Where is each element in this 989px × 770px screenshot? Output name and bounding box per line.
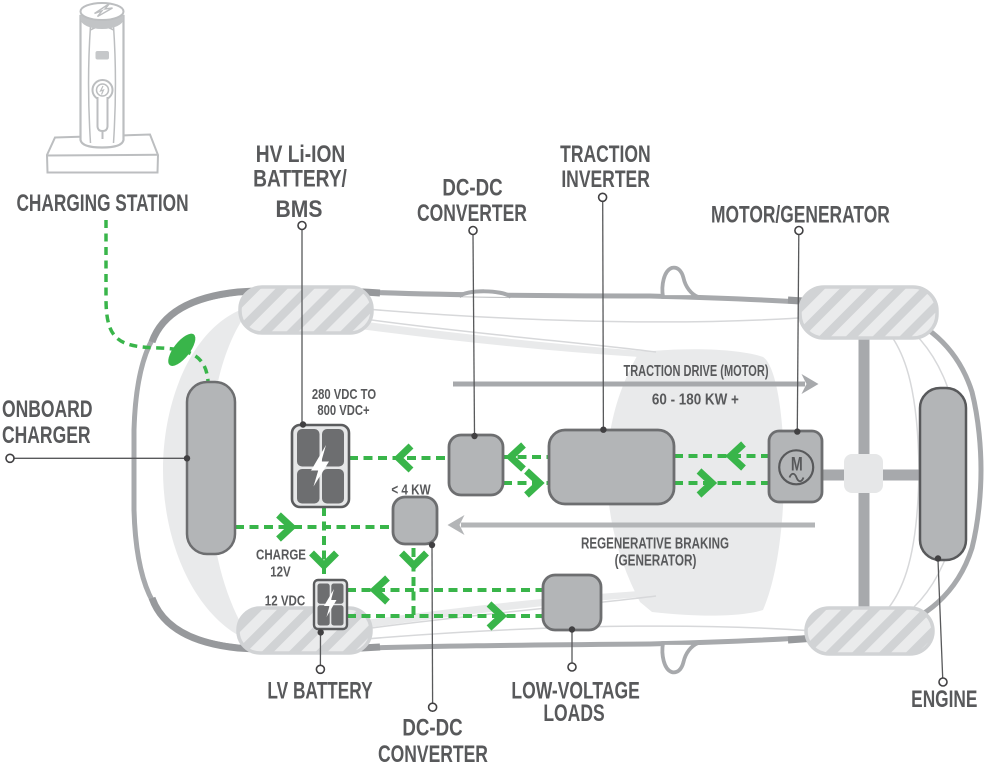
svg-text:ONBOARD: ONBOARD [2, 396, 92, 422]
svg-text:LOADS: LOADS [543, 700, 604, 726]
svg-text:DC-DC: DC-DC [402, 714, 462, 741]
svg-text:ENGINE: ENGINE [911, 686, 977, 712]
svg-text:CHARGE: CHARGE [256, 546, 306, 563]
svg-text:MOTOR/GENERATOR: MOTOR/GENERATOR [711, 202, 890, 228]
svg-text:TRACTION DRIVE (MOTOR): TRACTION DRIVE (MOTOR) [623, 362, 768, 379]
svg-text:BMS: BMS [276, 196, 323, 223]
svg-text:TRACTION: TRACTION [560, 141, 650, 167]
svg-text:CHARGING STATION: CHARGING STATION [16, 190, 188, 216]
svg-text:280 VDC TO: 280 VDC TO [312, 385, 376, 402]
svg-text:60 - 180 KW +: 60 - 180 KW + [652, 392, 739, 409]
svg-text:12V: 12V [270, 563, 291, 580]
svg-text:CONVERTER: CONVERTER [417, 200, 527, 226]
svg-text:INVERTER: INVERTER [561, 166, 650, 192]
svg-text:BATTERY/: BATTERY/ [253, 164, 347, 192]
svg-text:CONVERTER: CONVERTER [378, 741, 488, 767]
svg-text:CHARGER: CHARGER [2, 422, 91, 448]
svg-text:DC-DC: DC-DC [442, 174, 502, 201]
svg-text:800 VDC+: 800 VDC+ [317, 401, 369, 418]
svg-text:< 4 KW: < 4 KW [391, 481, 431, 498]
svg-text:HV Li-ION: HV Li-ION [256, 140, 346, 168]
svg-text:M: M [791, 454, 803, 475]
svg-text:REGENERATIVE BRAKING: REGENERATIVE BRAKING [581, 534, 729, 552]
svg-text:(GENERATOR): (GENERATOR) [615, 551, 697, 569]
svg-text:LV BATTERY: LV BATTERY [267, 678, 372, 704]
svg-text:12 VDC: 12 VDC [265, 592, 306, 609]
